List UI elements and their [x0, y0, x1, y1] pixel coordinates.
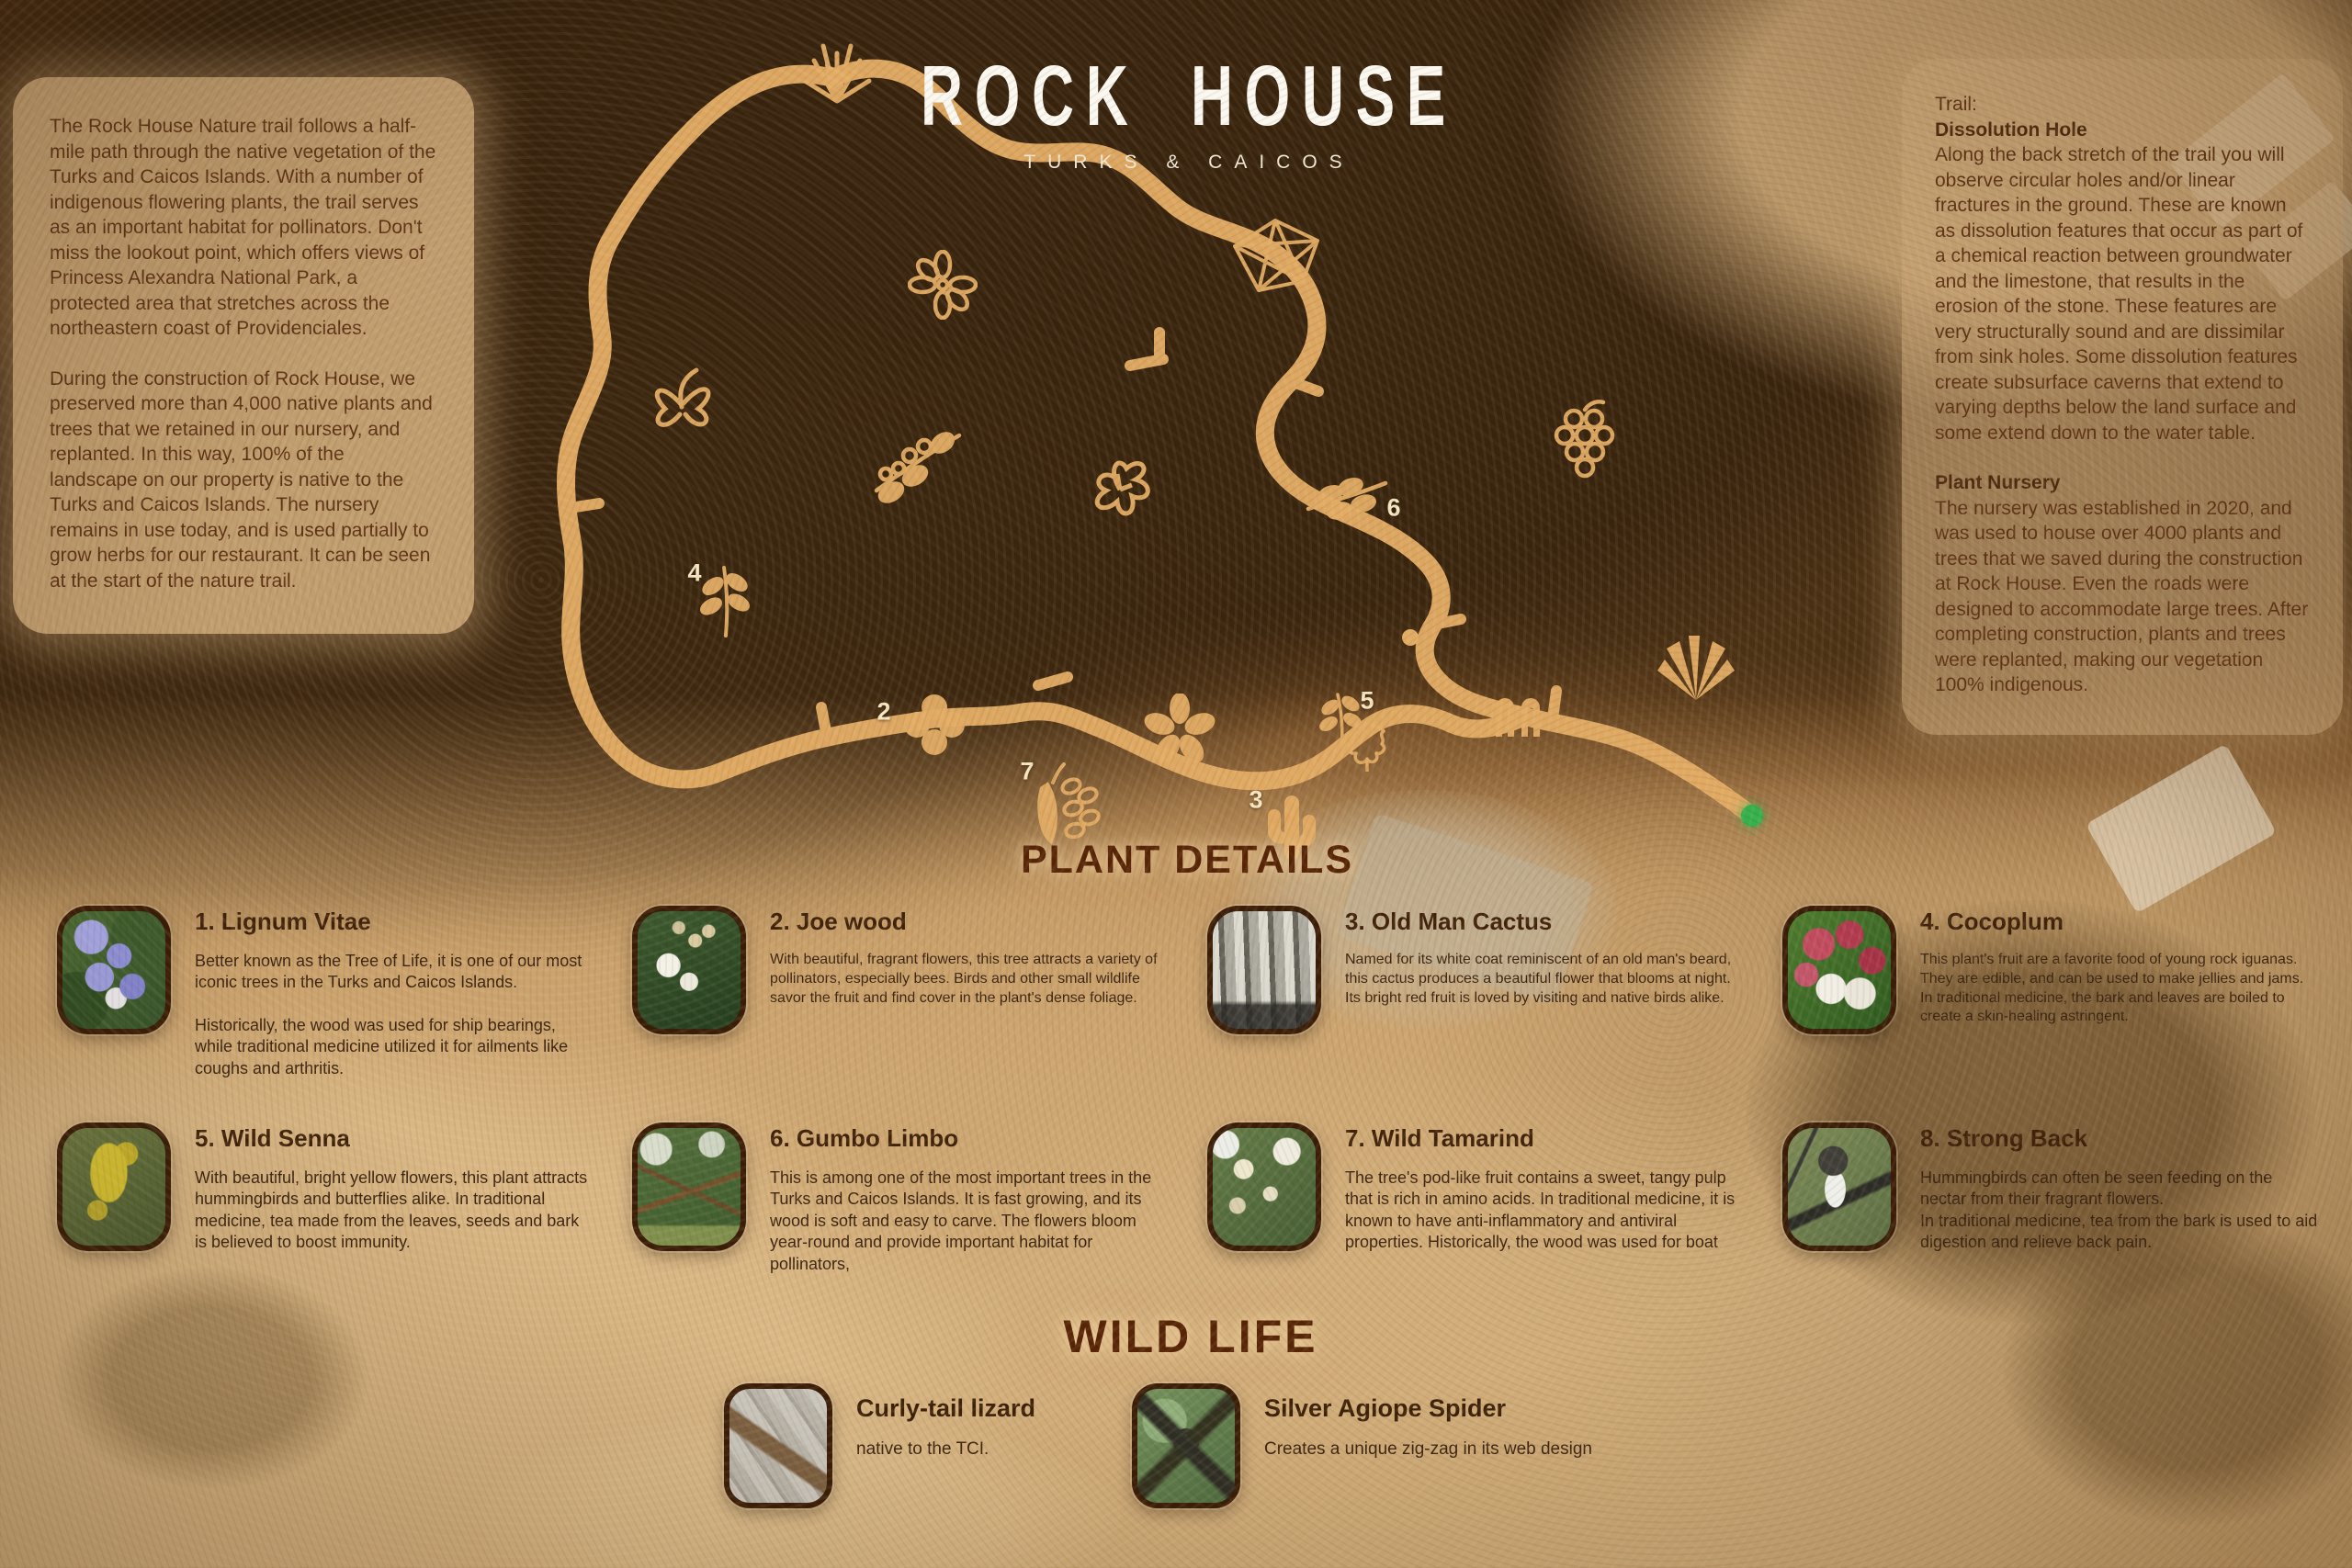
plant-photo-1 — [57, 906, 171, 1034]
plant-description: Named for its white coat reminiscent of … — [1345, 951, 1744, 1008]
plant-title: 5. Wild Senna — [195, 1124, 594, 1153]
plant-title: 6. Gumbo Limbo — [770, 1124, 1169, 1153]
plant-title: 7. Wild Tamarind — [1345, 1124, 1744, 1153]
wildlife-card-spider: Silver Agiope SpiderCreates a unique zig… — [1132, 1383, 1592, 1508]
plant-card-7: 7. Wild TamarindThe tree's pod-like frui… — [1207, 1122, 1744, 1339]
plant-description: The tree's pod-like fruit contains a swe… — [1345, 1168, 1744, 1254]
plant-details-heading: PLANT DETAILS — [1021, 838, 1353, 883]
trail-section-heading: Dissolution Hole — [1935, 118, 2310, 143]
plant-description: This is among one of the most important … — [770, 1168, 1169, 1275]
plant-text: 8. Strong BackHummingbirds can often be … — [1920, 1122, 2319, 1254]
wildlife-title: Silver Agiope Spider — [1264, 1394, 1592, 1423]
plant-title: 4. Cocoplum — [1920, 908, 2319, 936]
wildlife-card-lizard: Curly-tail lizardnative to the TCI. — [724, 1383, 1035, 1508]
plant-description: This plant's fruit are a favorite food o… — [1920, 951, 2319, 1027]
trail-marker-7: 7 — [1020, 758, 1034, 786]
plant-photo-7 — [1207, 1122, 1321, 1251]
trail-marker-4: 4 — [687, 559, 701, 588]
plant-description: Better known as the Tree of Life, it is … — [195, 951, 594, 994]
wildlife-description: Creates a unique zig-zag in its web desi… — [1264, 1439, 1592, 1460]
plant-card-3: 3. Old Man CactusNamed for its white coa… — [1207, 906, 1744, 1122]
plant-card-5: 5. Wild SennaWith beautiful, bright yell… — [57, 1122, 594, 1339]
plant-text: 4. CocoplumThis plant's fruit are a favo… — [1920, 906, 2319, 1027]
wildlife-photo-2 — [1132, 1383, 1240, 1508]
plant-photo-6 — [632, 1122, 746, 1251]
plant-card-6: 6. Gumbo LimboThis is among one of the m… — [632, 1122, 1169, 1339]
wildlife-text: Curly-tail lizardnative to the TCI. — [856, 1383, 1035, 1460]
trail-info-panel: Trail: Dissolution Hole Along the back s… — [1902, 59, 2343, 735]
logo-title: ROCK HOUSE — [921, 48, 1457, 145]
plant-photo-2 — [632, 906, 746, 1034]
plant-card-1: 1. Lignum VitaeBetter known as the Tree … — [57, 906, 594, 1122]
plant-description: With beautiful, bright yellow flowers, t… — [195, 1168, 594, 1254]
trail-marker-3: 3 — [1249, 786, 1262, 815]
plant-photo-4 — [1782, 906, 1896, 1034]
plant-description: With beautiful, fragrant flowers, this t… — [770, 951, 1169, 1008]
wildlife-title: Curly-tail lizard — [856, 1394, 1035, 1423]
intro-paragraph-2: During the construction of Rock House, w… — [50, 367, 437, 594]
trail-section-heading: Plant Nursery — [1935, 470, 2310, 496]
plant-title: 1. Lignum Vitae — [195, 908, 594, 936]
plant-title: 2. Joe wood — [770, 908, 1169, 936]
trail-marker-2: 2 — [876, 698, 890, 727]
plant-description-2: Historically, the wood was used for ship… — [195, 1015, 594, 1079]
trail-section-body: Along the back stretch of the trail you … — [1935, 142, 2310, 446]
wildlife-text: Silver Agiope SpiderCreates a unique zig… — [1264, 1383, 1592, 1460]
plant-title: 8. Strong Back — [1920, 1124, 2319, 1153]
logo: ROCK HOUSE TURKS & CAICOS — [869, 48, 1508, 174]
plant-text: 2. Joe woodWith beautiful, fragrant flow… — [770, 906, 1169, 1008]
plant-card-2: 2. Joe woodWith beautiful, fragrant flow… — [632, 906, 1169, 1122]
plant-text: 3. Old Man CactusNamed for its white coa… — [1345, 906, 1744, 1008]
intro-panel: The Rock House Nature trail follows a ha… — [13, 77, 474, 634]
wildlife-photo-1 — [724, 1383, 832, 1508]
trail-start-dot — [1741, 805, 1763, 827]
trail-section-body: The nursery was established in 2020, and… — [1935, 496, 2310, 698]
plant-photo-5 — [57, 1122, 171, 1251]
wildlife-description: native to the TCI. — [856, 1439, 1035, 1460]
plant-photo-3 — [1207, 906, 1321, 1034]
plant-text: 5. Wild SennaWith beautiful, bright yell… — [195, 1122, 594, 1254]
plant-card-8: 8. Strong BackHummingbirds can often be … — [1782, 1122, 2319, 1339]
plant-photo-8 — [1782, 1122, 1896, 1251]
trail-marker-5: 5 — [1360, 687, 1374, 716]
logo-subtitle: TURKS & CAICOS — [869, 152, 1508, 174]
plant-text: 6. Gumbo LimboThis is among one of the m… — [770, 1122, 1169, 1275]
plant-card-4: 4. CocoplumThis plant's fruit are a favo… — [1782, 906, 2319, 1122]
plant-text: 1. Lignum VitaeBetter known as the Tree … — [195, 906, 594, 1079]
intro-paragraph-1: The Rock House Nature trail follows a ha… — [50, 114, 437, 342]
plant-text: 7. Wild TamarindThe tree's pod-like frui… — [1345, 1122, 1744, 1254]
trail-marker-6: 6 — [1386, 494, 1400, 523]
trail-label: Trail: — [1935, 92, 2310, 118]
plant-title: 3. Old Man Cactus — [1345, 908, 1744, 936]
plant-grid: 1. Lignum VitaeBetter known as the Tree … — [57, 906, 2310, 1339]
plant-description: Hummingbirds can often be seen feeding o… — [1920, 1168, 2319, 1254]
